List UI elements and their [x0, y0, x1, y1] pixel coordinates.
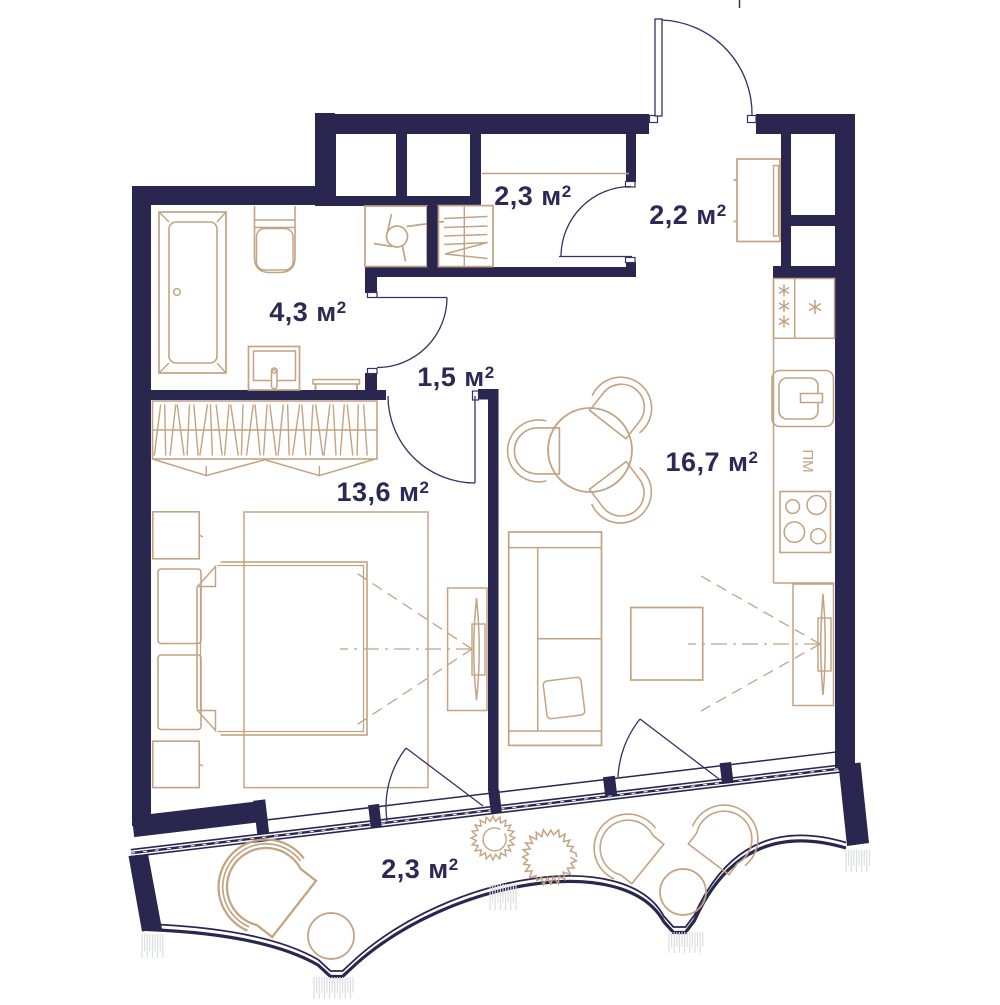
- svg-text:1,5 м2: 1,5 м2: [417, 362, 494, 392]
- svg-text:2,3 м2: 2,3 м2: [381, 854, 458, 884]
- svg-text:4,3 м2: 4,3 м2: [269, 297, 346, 327]
- svg-text:2,2 м2: 2,2 м2: [649, 200, 726, 230]
- svg-text:2,3 м2: 2,3 м2: [494, 181, 571, 211]
- svg-text:13,6 м2: 13,6 м2: [337, 477, 430, 507]
- svg-text:16,7 м2: 16,7 м2: [666, 447, 759, 477]
- svg-text:ПМ: ПМ: [799, 449, 816, 472]
